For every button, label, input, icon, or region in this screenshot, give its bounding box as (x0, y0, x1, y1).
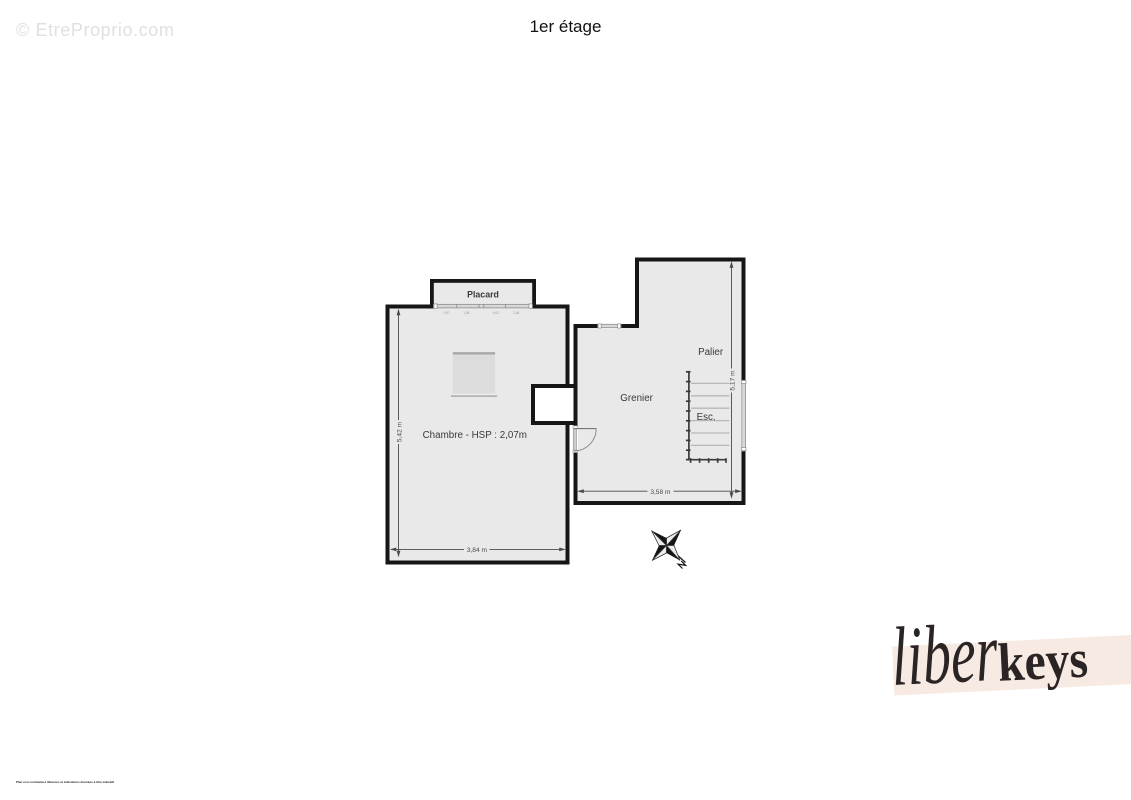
svg-text:1,08: 1,08 (463, 311, 469, 315)
svg-text:3,58 m: 3,58 m (650, 489, 671, 496)
svg-text:2,48: 2,48 (513, 311, 519, 315)
svg-text:Chambre - HSP : 2,07m: Chambre - HSP : 2,07m (423, 430, 527, 441)
svg-text:Grenier: Grenier (620, 393, 653, 404)
svg-text:5,42 m: 5,42 m (396, 421, 403, 442)
svg-text:Placard: Placard (467, 289, 499, 299)
svg-text:Palier: Palier (698, 347, 724, 358)
svg-text:0,97: 0,97 (444, 311, 450, 315)
svg-text:liber: liber (889, 606, 1000, 704)
svg-text:Esc.: Esc. (697, 412, 716, 423)
svg-text:keys: keys (996, 629, 1089, 693)
svg-text:3,84 m: 3,84 m (467, 547, 488, 554)
svg-text:4,02: 4,02 (493, 311, 499, 315)
svg-text:5,17 m: 5,17 m (729, 370, 736, 391)
